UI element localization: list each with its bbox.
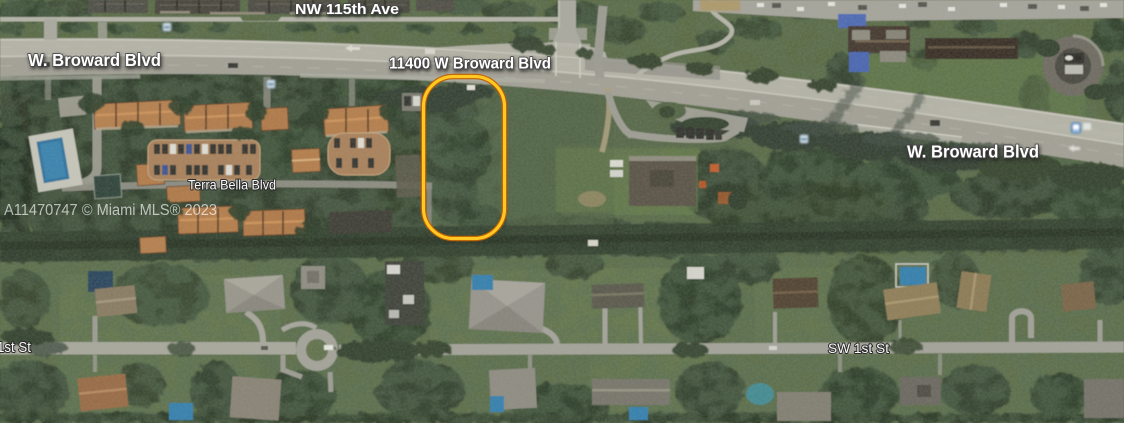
svg-text:Terra Bella Blvd: Terra Bella Blvd bbox=[188, 178, 276, 193]
svg-text:11400 W Broward Blvd: 11400 W Broward Blvd bbox=[389, 56, 551, 73]
svg-text:1st St: 1st St bbox=[0, 340, 31, 356]
svg-text:SW 1st St: SW 1st St bbox=[828, 340, 889, 356]
svg-text:NW 115th Ave: NW 115th Ave bbox=[295, 1, 399, 18]
svg-text:W. Broward Blvd: W. Broward Blvd bbox=[907, 141, 1039, 161]
svg-text:W. Broward Blvd: W. Broward Blvd bbox=[28, 50, 161, 70]
svg-text:A11470747 © Miami MLS® 2023: A11470747 © Miami MLS® 2023 bbox=[4, 202, 217, 219]
